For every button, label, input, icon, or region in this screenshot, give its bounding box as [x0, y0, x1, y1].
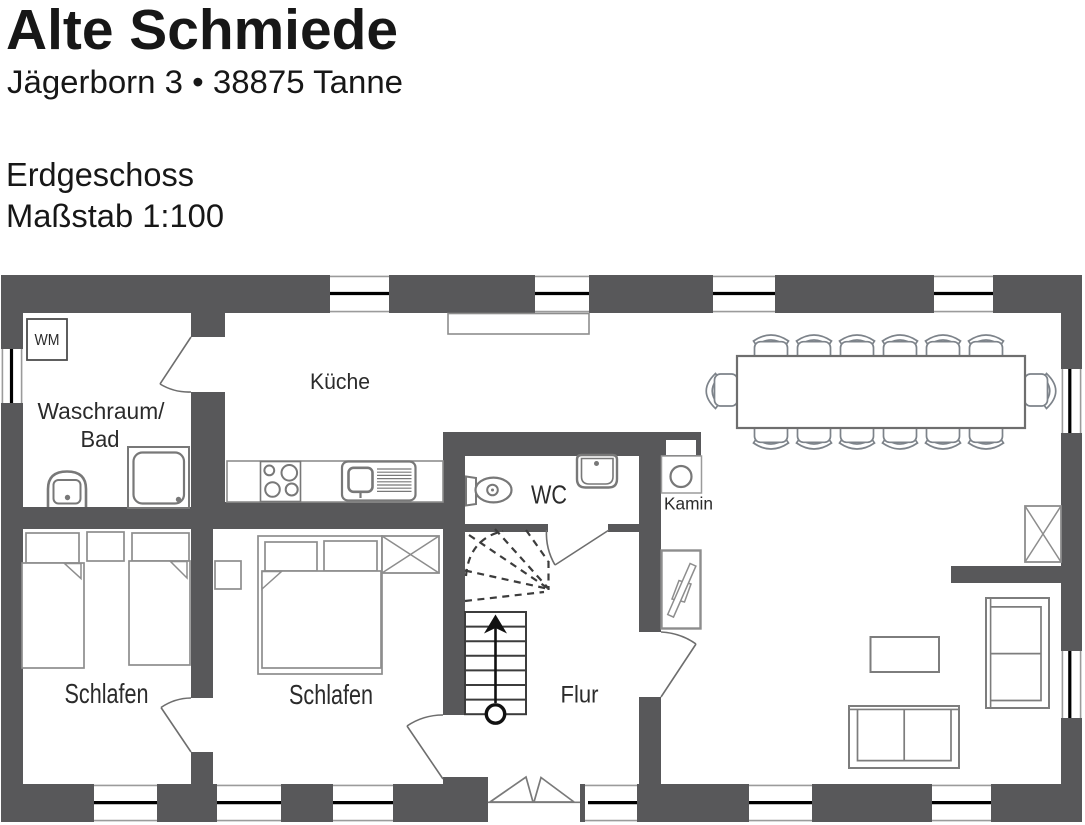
svg-text:Erdgeschoss: Erdgeschoss [6, 156, 194, 193]
svg-text:Alte Schmiede: Alte Schmiede [6, 0, 398, 62]
svg-text:WC: WC [531, 480, 567, 510]
svg-text:Kamin: Kamin [664, 494, 713, 514]
svg-text:Schlafen: Schlafen [65, 678, 149, 709]
svg-text:Bad: Bad [81, 426, 120, 452]
svg-text:Schlafen: Schlafen [289, 679, 373, 710]
svg-text:Waschraum/: Waschraum/ [38, 398, 166, 424]
svg-text:Maßstab 1:100: Maßstab 1:100 [6, 198, 224, 234]
svg-text:Jägerborn 3 • 38875 Tanne: Jägerborn 3 • 38875 Tanne [7, 64, 403, 100]
svg-text:WM: WM [35, 332, 60, 349]
svg-text:Küche: Küche [310, 369, 370, 394]
svg-text:Flur: Flur [561, 682, 599, 709]
